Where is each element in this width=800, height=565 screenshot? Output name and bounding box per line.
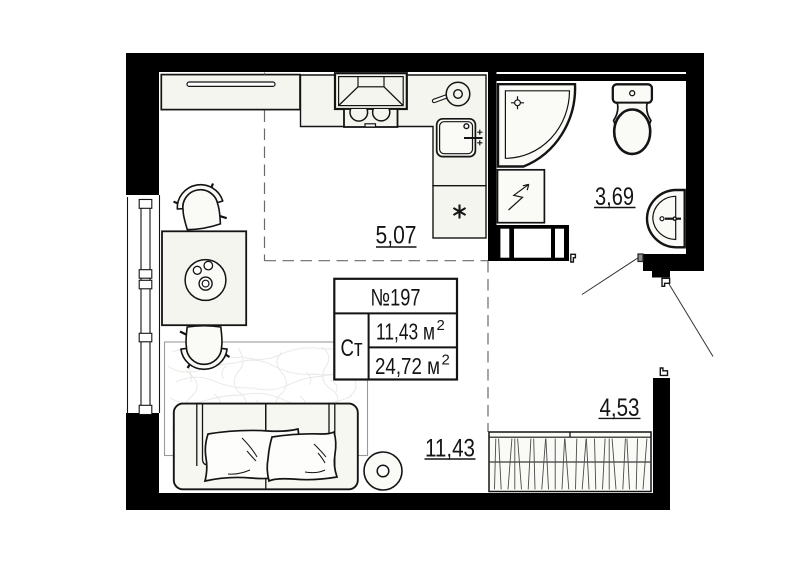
svg-text:№197: №197	[371, 285, 421, 312]
svg-text:Ст: Ст	[341, 335, 363, 362]
svg-text:2: 2	[437, 317, 445, 334]
svg-text:11,43: 11,43	[425, 434, 475, 462]
svg-text:2: 2	[442, 352, 450, 369]
svg-text:11,43 м: 11,43 м	[376, 319, 435, 345]
svg-text:5,07: 5,07	[376, 222, 417, 250]
svg-text:3,69: 3,69	[595, 183, 634, 211]
svg-text:4,53: 4,53	[600, 394, 640, 422]
svg-text:24,72 м: 24,72 м	[375, 353, 440, 379]
